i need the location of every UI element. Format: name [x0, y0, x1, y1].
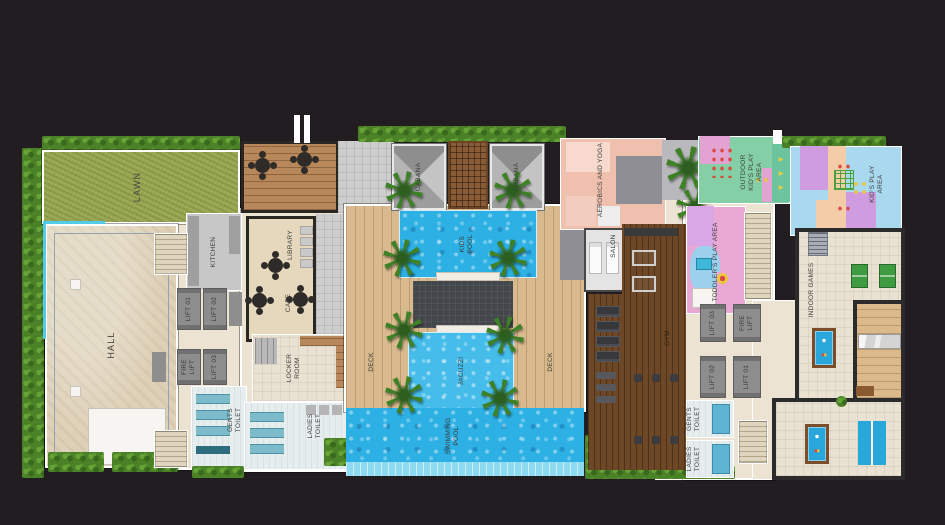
- equipment-rail: [624, 228, 678, 236]
- kitchen-counter: [229, 216, 240, 254]
- dumbbell-rack: [596, 372, 616, 379]
- weight-rack: [632, 250, 656, 266]
- aerobics-label: AEROBICS AND YOGA: [596, 145, 606, 215]
- arrow-right-icon: ▶: [779, 170, 784, 177]
- hall-label: HALL: [105, 325, 119, 365]
- hedge-top-center: [358, 126, 566, 142]
- shaft-stub: [152, 352, 166, 382]
- treadmill: [596, 306, 620, 317]
- palm-tree: [489, 239, 527, 277]
- palm-tree: [383, 239, 421, 277]
- table-tennis-blue: [858, 421, 886, 465]
- toilet-stall: [250, 412, 284, 422]
- palm-tree: [385, 311, 423, 349]
- ladies-toilet-right-label: LADIES TOILET: [687, 446, 701, 472]
- palm-tree: [385, 376, 423, 414]
- cafe-table: [268, 258, 283, 273]
- play-structure: [696, 258, 712, 270]
- tile-patch: [800, 146, 828, 190]
- weight-rack: [632, 276, 656, 292]
- library-bench: [300, 226, 313, 235]
- cafe-table: [252, 293, 267, 308]
- marble-counter: [858, 334, 901, 349]
- wall-stub: [773, 130, 782, 144]
- ladies-toilet-left-label: LADIES TOILET: [308, 412, 322, 440]
- tile-patch: [616, 156, 662, 204]
- pool-infinity-edge: [346, 462, 584, 476]
- gym-machine: [652, 374, 660, 382]
- indoor-games-label: INDOOR GAMES: [807, 264, 817, 316]
- play-dots: [852, 180, 866, 194]
- lockers: [255, 338, 277, 364]
- play-dots: [836, 204, 854, 212]
- treadmill: [596, 336, 620, 347]
- wall-stub: [294, 115, 300, 143]
- tile-patch: [560, 230, 584, 280]
- table-tennis-green: [851, 264, 868, 288]
- table-tennis-green: [879, 264, 896, 288]
- gym-machine: [634, 436, 642, 444]
- outdoor-kids-play-label: OUTDOOR KID'S PLAY AREA: [745, 146, 759, 198]
- salon-label: SALON: [609, 233, 619, 259]
- dumbbell-rack: [596, 396, 616, 403]
- kitchen-counter: [188, 216, 199, 286]
- toddlers-play-label: TODDLER'S PLAY AREA: [711, 224, 721, 300]
- billiards-table: [805, 424, 829, 464]
- gym-machine: [670, 374, 678, 382]
- toilet-fixtures: [712, 404, 730, 434]
- fire-lift-right-label: FIRE LIFT: [740, 313, 754, 333]
- cabana-left-label: CABANA: [414, 161, 424, 193]
- pavement: [338, 141, 394, 213]
- potted-plant: [836, 396, 847, 407]
- dumbbell-rack: [596, 384, 616, 391]
- jacuzzi-label: JACUZZI: [457, 355, 467, 387]
- hall-water-edge-left: [43, 221, 46, 339]
- lift-01-left-label: LIFT 01: [184, 294, 194, 324]
- gym-machine: [652, 436, 660, 444]
- tile-patch: [566, 196, 596, 226]
- arrow-right-icon: ▶: [779, 184, 784, 191]
- toilet-stall: [196, 410, 230, 420]
- staircase: [744, 212, 772, 300]
- gents-toilet-left-label: GENTS TOILET: [228, 407, 242, 433]
- deck-table: [297, 152, 312, 167]
- hall-column: [70, 386, 81, 397]
- staircase: [154, 430, 188, 468]
- gym-machine: [634, 374, 642, 382]
- pool-bench: [436, 272, 500, 281]
- gym-machine: [670, 436, 678, 444]
- hall-hedge: [48, 452, 104, 472]
- toilet-stall: [196, 426, 230, 436]
- shaft-stub: [229, 292, 242, 326]
- library-bench: [300, 237, 313, 246]
- deck-left-label: DECK: [367, 350, 377, 374]
- lawn-hedge: [42, 136, 240, 151]
- play-ladder: [710, 146, 732, 178]
- lift-03-right-label: LIFT 03: [708, 308, 718, 338]
- lift-02-right-label: LIFT 02: [708, 362, 718, 392]
- play-dots: [836, 162, 854, 170]
- pergola-deck: [448, 141, 488, 209]
- hedge: [192, 466, 244, 478]
- kitchen-label: KITCHEN: [209, 230, 219, 274]
- arrow-right-icon: ▶: [779, 156, 784, 163]
- lift-03-left-label: LIFT 03: [210, 352, 220, 382]
- lift-01-right-label: LIFT 01: [742, 362, 752, 392]
- staircase: [154, 233, 188, 275]
- floor-plan: ▶ ▶ ▶ LAWN HALL KITCHEN LIFT 01 LIFT 02 …: [0, 0, 945, 525]
- lawn-label: LAWN: [132, 167, 144, 207]
- locker-room-label: LOCKER ROOM: [287, 353, 301, 383]
- tree-row-left: [22, 148, 44, 478]
- toilet-stall: [250, 428, 284, 438]
- library-bench: [300, 248, 313, 257]
- cafe-table: [293, 292, 308, 307]
- massage-bed: [589, 242, 602, 274]
- library-bench: [300, 259, 313, 268]
- toilet-fixtures: [712, 444, 730, 474]
- gym-label: GYM: [663, 328, 673, 348]
- hall-water-edge-top: [45, 221, 105, 224]
- deck-table: [255, 158, 270, 173]
- gents-toilet-right-label: GENTS TOILET: [687, 406, 701, 432]
- toilet-stall: [250, 444, 284, 454]
- toilet-stall: [196, 394, 230, 404]
- toilet-counter: [196, 446, 230, 454]
- deck-right-label: DECK: [546, 350, 556, 374]
- staircase: [738, 420, 768, 464]
- cafe-deck: [241, 141, 339, 213]
- library-label: LIBRARY: [286, 228, 296, 262]
- climbing-grid: [834, 170, 854, 190]
- wall-stub: [304, 115, 310, 143]
- locker-bench: [300, 336, 346, 346]
- cabana-right-label: CABANA: [512, 161, 522, 193]
- foosball-table: [808, 232, 828, 256]
- palm-tree: [481, 379, 519, 417]
- pavement-walkway: [316, 214, 346, 342]
- fire-lift-left-label: FIRE LIFT: [182, 357, 196, 377]
- planter: [324, 438, 348, 466]
- hall-column: [70, 279, 81, 290]
- kids-pool-label: KIDS POOL: [460, 233, 474, 255]
- room-swimming-pool: [346, 408, 584, 464]
- treadmill: [596, 321, 620, 332]
- swimming-pool-label: SWIMMING POOL: [446, 415, 460, 457]
- direction-arrows: ▶ ▶ ▶: [772, 144, 790, 202]
- shower-bench: [332, 405, 342, 415]
- treadmill: [596, 351, 620, 362]
- billiards-table: [812, 328, 836, 368]
- cafe-label: CAFE: [284, 292, 294, 314]
- kids-play-label: KID'S PLAY AREA: [870, 164, 884, 204]
- bar-table: [856, 386, 874, 396]
- lift-02-left-label: LIFT 02: [210, 294, 220, 324]
- palm-tree: [486, 316, 524, 354]
